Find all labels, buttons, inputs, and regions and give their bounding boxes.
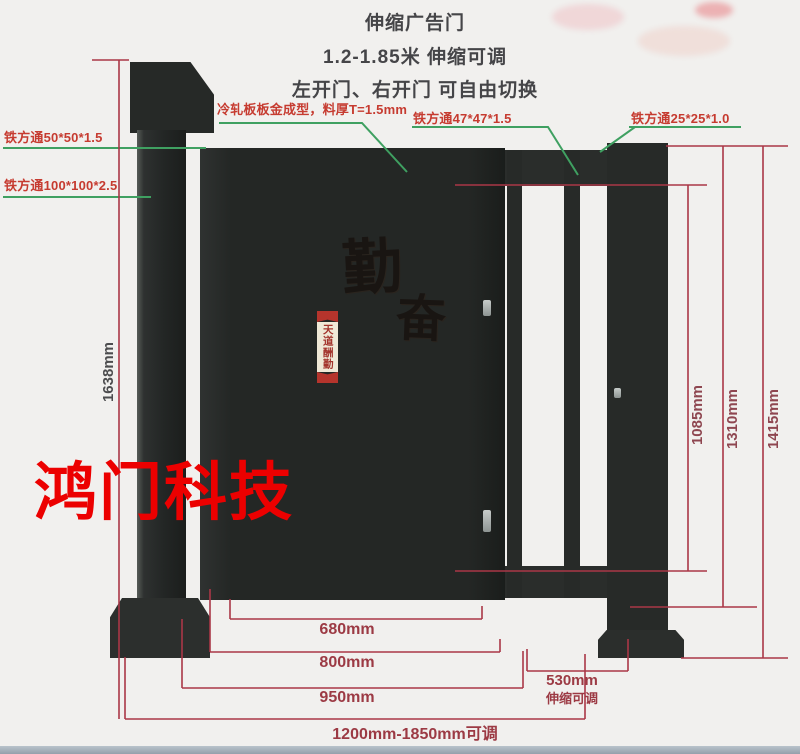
spec-label-tube100: 铁方通100*100*2.5	[4, 175, 117, 194]
gate-door-frame	[200, 148, 505, 600]
dim-post-height: 1415mm	[765, 374, 783, 464]
gate-right-post	[607, 143, 668, 630]
photo-smudge	[695, 2, 733, 18]
gate-right-post-base	[598, 630, 684, 658]
ribbon-body: 天道酬勤	[317, 322, 338, 372]
photo-bottom-edge	[0, 746, 800, 754]
post-bolt	[614, 388, 621, 398]
ribbon-bottom-band	[317, 372, 338, 383]
dim-door-panel-height: 1085mm	[689, 370, 707, 460]
dim-poster-width: 680mm	[299, 621, 395, 639]
ribbon-text: 天道酬勤	[322, 324, 333, 370]
spec-label-tube50: 铁方通50*50*1.5	[4, 127, 103, 146]
dim-door-outer-width: 950mm	[299, 689, 395, 707]
gate-left-post-base	[110, 598, 210, 658]
photo-smudge	[638, 26, 730, 56]
header-line-product: 伸缩广告门	[190, 8, 640, 35]
poster-char-qin: 勤	[340, 236, 403, 299]
door-hinge-pin	[483, 300, 491, 316]
watermark-text: 鸿门科技	[34, 456, 294, 532]
header-line-range: 1.2-1.85米 伸缩可调	[190, 42, 640, 69]
ribbon-top-band	[317, 311, 338, 322]
slide-section-bar	[564, 150, 580, 598]
dim-slide-note: 伸缩可调	[522, 688, 622, 707]
slide-section-bar	[507, 150, 522, 598]
dim-slide-width: 530mm	[522, 672, 622, 689]
header-line-opening: 左开门、右开门 可自由切换	[190, 75, 640, 102]
dim-left-total-height: 1638mm	[100, 327, 118, 417]
poster-ribbon: 天道酬勤	[317, 311, 338, 383]
spec-label-cold-plate: 冷轧板板金成型，料厚T=1.5mm	[217, 99, 407, 118]
spec-label-tube47: 铁方通47*47*1.5	[413, 108, 512, 127]
dim-slide-frame-height: 1310mm	[724, 374, 742, 464]
dim-door-width: 800mm	[299, 654, 395, 672]
door-lock	[483, 510, 491, 532]
dim-total-width: 1200mm-1850mm可调	[300, 720, 530, 744]
spec-label-tube25: 铁方通25*25*1.0	[631, 108, 730, 127]
product-diagram: 伸缩广告门 1.2-1.85米 伸缩可调 左开门、右开门 可自由切换	[0, 0, 800, 754]
poster-char-fen: 奋	[395, 293, 447, 345]
